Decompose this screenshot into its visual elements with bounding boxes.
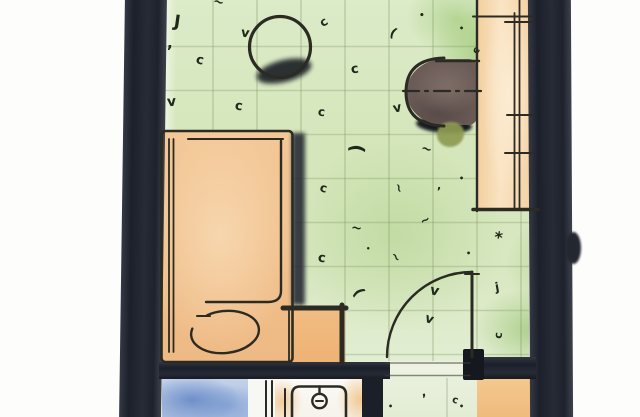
wall-right: [528, 0, 573, 417]
door-opening-floor: [388, 361, 466, 378]
wall-right-bump: [566, 232, 581, 264]
wall-left: [119, 0, 167, 417]
bathroom-floor-gap: [248, 379, 275, 417]
shower-tray: [162, 379, 248, 417]
entry-floor: [383, 377, 477, 417]
bed: [161, 130, 293, 363]
door-hinge-post: [463, 349, 484, 380]
floorplan-canvas: J,cv~vccc(cv••c(~,c~•~~*••c~(vjvc•,•c: [0, 0, 640, 417]
bed-shadow: [292, 133, 305, 305]
closet: [477, 379, 534, 417]
wall-bottom-left: [159, 362, 390, 379]
toilet-floor: [275, 379, 365, 417]
nightstand: [289, 306, 345, 363]
desk-console: [477, 0, 529, 211]
armchair: [407, 59, 479, 125]
bathroom-partition-wall: [362, 378, 383, 417]
wall-bottom-right: [481, 357, 536, 379]
